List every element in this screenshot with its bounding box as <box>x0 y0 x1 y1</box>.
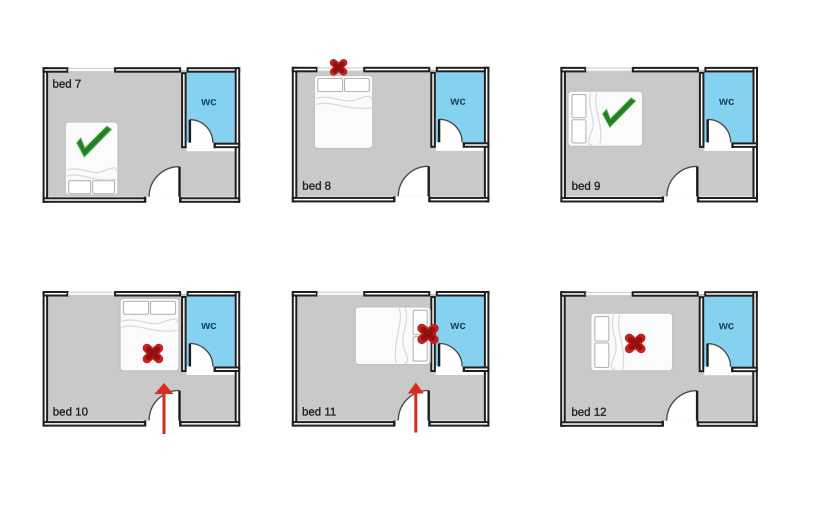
svg-text:bed 7: bed 7 <box>52 79 81 91</box>
svg-text:wc: wc <box>200 320 217 332</box>
svg-text:wc: wc <box>200 96 217 108</box>
svg-text:bed 11: bed 11 <box>302 407 336 419</box>
svg-text:wc: wc <box>449 96 466 108</box>
svg-text:wc: wc <box>718 96 735 108</box>
svg-text:wc: wc <box>449 320 466 332</box>
svg-text:bed 8: bed 8 <box>302 181 331 193</box>
svg-text:bed 9: bed 9 <box>572 181 601 193</box>
svg-text:bed 12: bed 12 <box>571 407 606 419</box>
svg-text:bed 10: bed 10 <box>53 407 88 419</box>
svg-text:wc: wc <box>718 320 735 332</box>
